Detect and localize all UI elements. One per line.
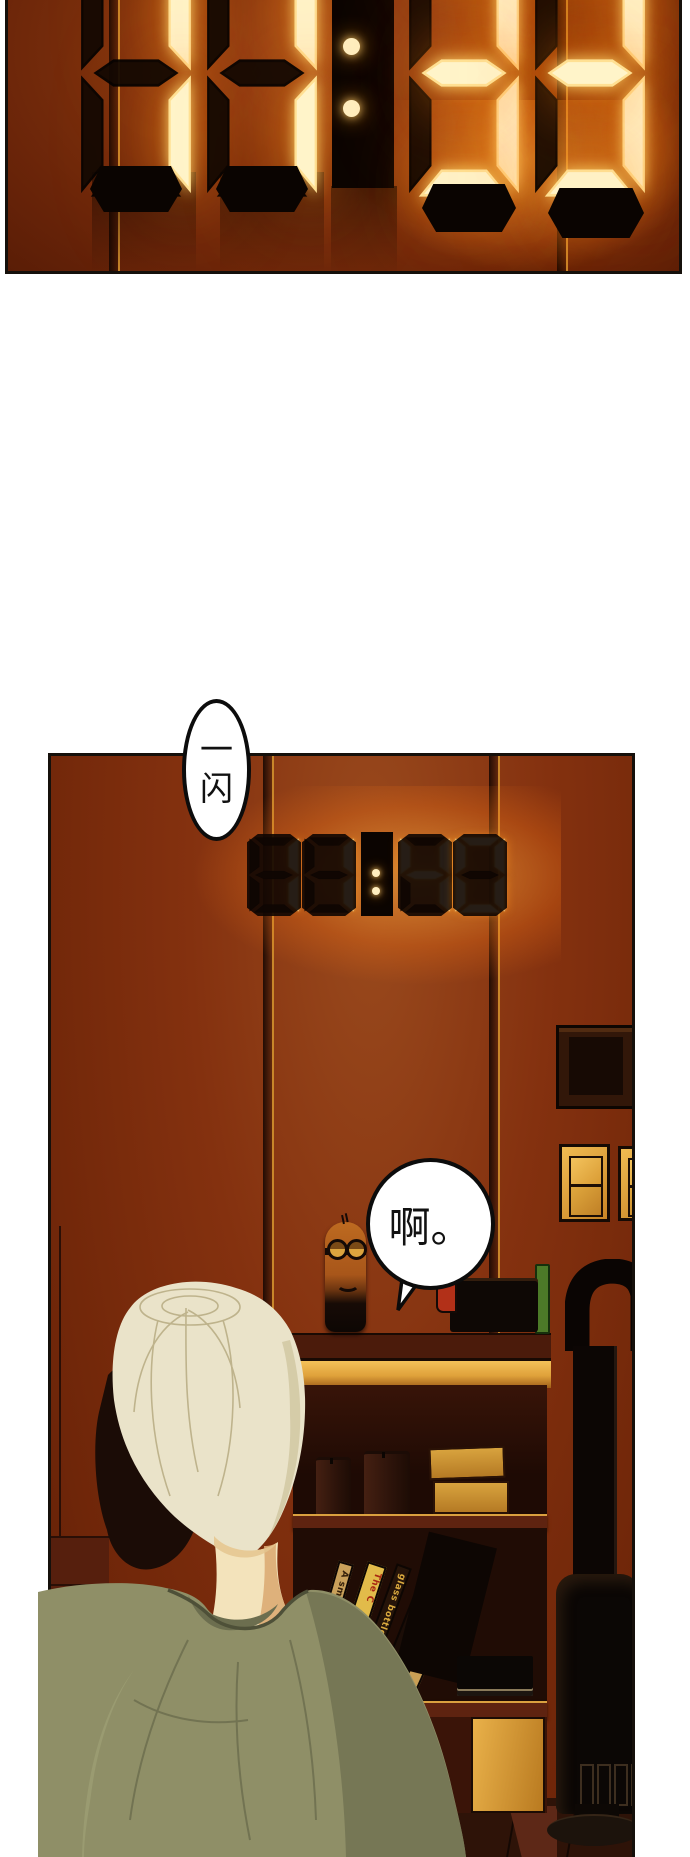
speech-bubble-flash: 一 闪: [182, 699, 251, 841]
clock-colon: [359, 837, 395, 913]
switch-plate: [618, 1146, 635, 1221]
clock-digit: [408, 0, 520, 198]
bubble-flash-char1: 一: [200, 733, 233, 768]
stove-pipe-arch: [565, 1259, 635, 1351]
picture-frame: [556, 1025, 635, 1109]
minion-mouth: [336, 1276, 360, 1292]
stove-vents: [580, 1764, 635, 1806]
colon-shadow: [331, 186, 397, 274]
minion-figure: [325, 1222, 366, 1332]
clock-digit: [249, 837, 299, 913]
stove-vent: [631, 1764, 635, 1806]
switch-plate-window: [628, 1158, 635, 1187]
stove-pipe: [573, 1346, 617, 1578]
clock-digit: [455, 837, 505, 913]
picture-frame-inner: [569, 1037, 623, 1095]
clock-colon: [332, 0, 394, 198]
clock-digit: [304, 837, 354, 913]
bubble-flash-char2: 闪: [200, 772, 233, 807]
wood-stove: [556, 1574, 635, 1814]
character-back-view: [38, 1280, 483, 1857]
led-clock-wall: [249, 837, 505, 913]
speech-bubble-ah: 啊。: [366, 1158, 495, 1290]
stove-base-plate: [547, 1814, 635, 1846]
clock-base: [90, 166, 182, 212]
clock-digit: [400, 837, 450, 913]
stove-vent: [614, 1764, 628, 1806]
switch-plate-window: [569, 1185, 603, 1217]
clock-digit: [534, 0, 646, 198]
panel-clock-closeup: [5, 0, 682, 274]
minion-eye: [346, 1239, 367, 1260]
game-console-dock: [450, 1278, 538, 1332]
clock-base: [422, 184, 516, 232]
minion-eye: [327, 1239, 348, 1260]
switch-plate-window: [569, 1156, 603, 1186]
switch-plate-window: [628, 1186, 635, 1217]
switch-plate: [559, 1144, 610, 1222]
comic-page: A smalThe Cglass bottlesspeeches and pTh…: [0, 0, 690, 1857]
clock-base: [216, 166, 308, 212]
stove-vent: [580, 1764, 594, 1806]
stove-vent: [597, 1764, 611, 1806]
bubble-ah-text: 啊。: [388, 1194, 472, 1255]
clock-base: [548, 188, 644, 238]
